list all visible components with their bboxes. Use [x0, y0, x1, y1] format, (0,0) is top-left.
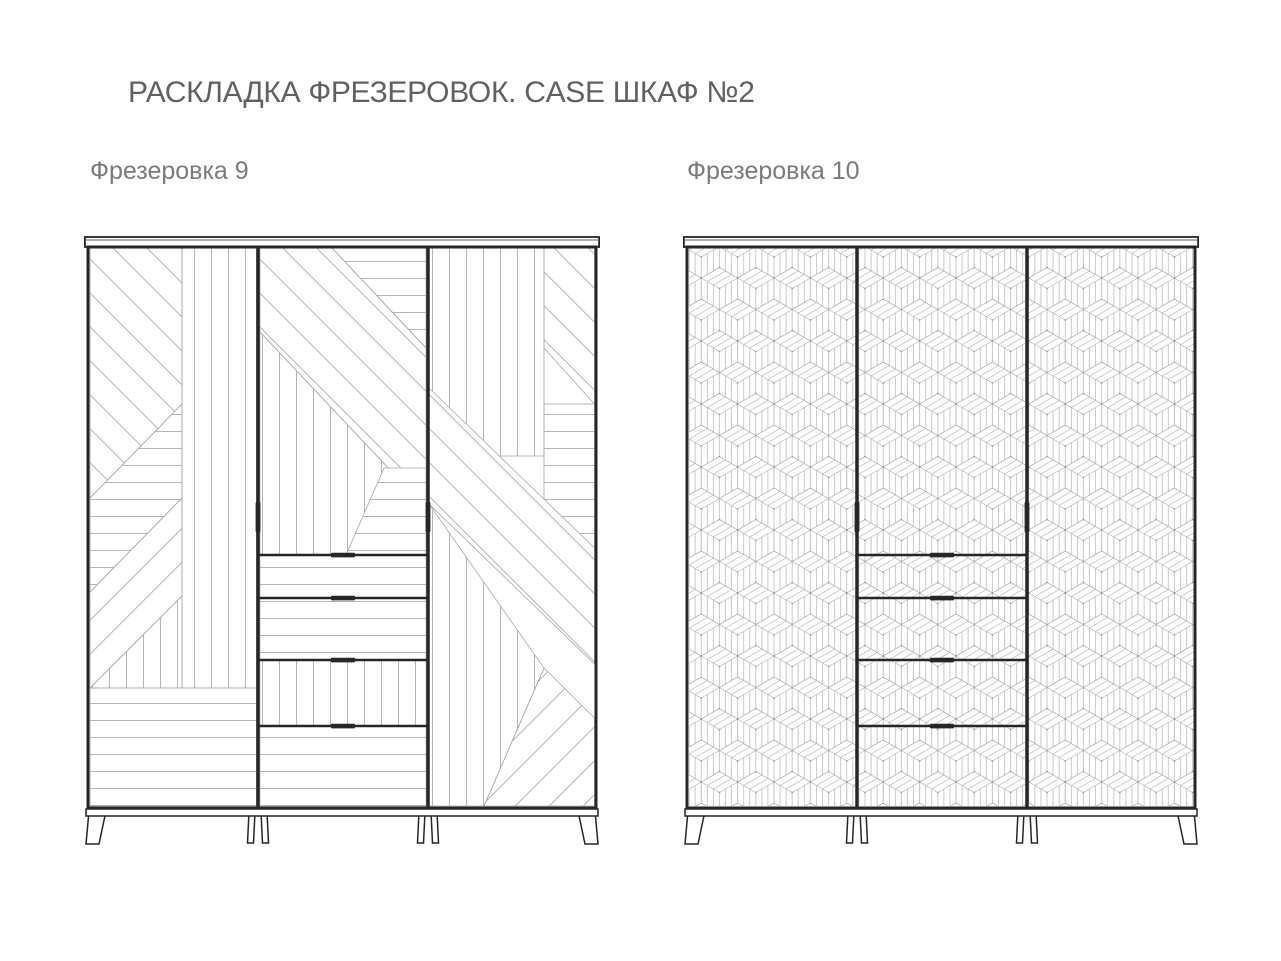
right-door-milling [1028, 248, 1194, 806]
right-door-milling [429, 248, 595, 806]
figure-label-milling-9: Фрезеровка 9 [90, 157, 249, 186]
page-title: РАСКЛАДКА ФРЕЗЕРОВОК. CASE ШКАФ №2 [128, 76, 755, 110]
wardrobe-base-rail [685, 809, 1197, 816]
drawer-4-milling [859, 726, 1025, 806]
figure-label-milling-10: Фрезеровка 10 [687, 157, 860, 186]
wardrobe-drawing-milling-9 [84, 236, 600, 848]
center-door-milling [859, 248, 1025, 555]
center-door-milling [260, 248, 426, 555]
drawer-1-milling [859, 555, 1025, 598]
drawer-milling [260, 555, 426, 806]
wardrobe-base-rail [86, 809, 598, 816]
left-door-milling [90, 248, 257, 806]
wardrobe-drawing-milling-10 [683, 236, 1199, 848]
sheet: РАСКЛАДКА ФРЕЗЕРОВОК. CASE ШКАФ №2 Фрезе… [0, 0, 1281, 961]
cube-milling-panels [689, 248, 1194, 806]
left-door-milling [689, 248, 856, 806]
drawer-3-milling [859, 660, 1025, 726]
drawer-2-milling [859, 598, 1025, 660]
